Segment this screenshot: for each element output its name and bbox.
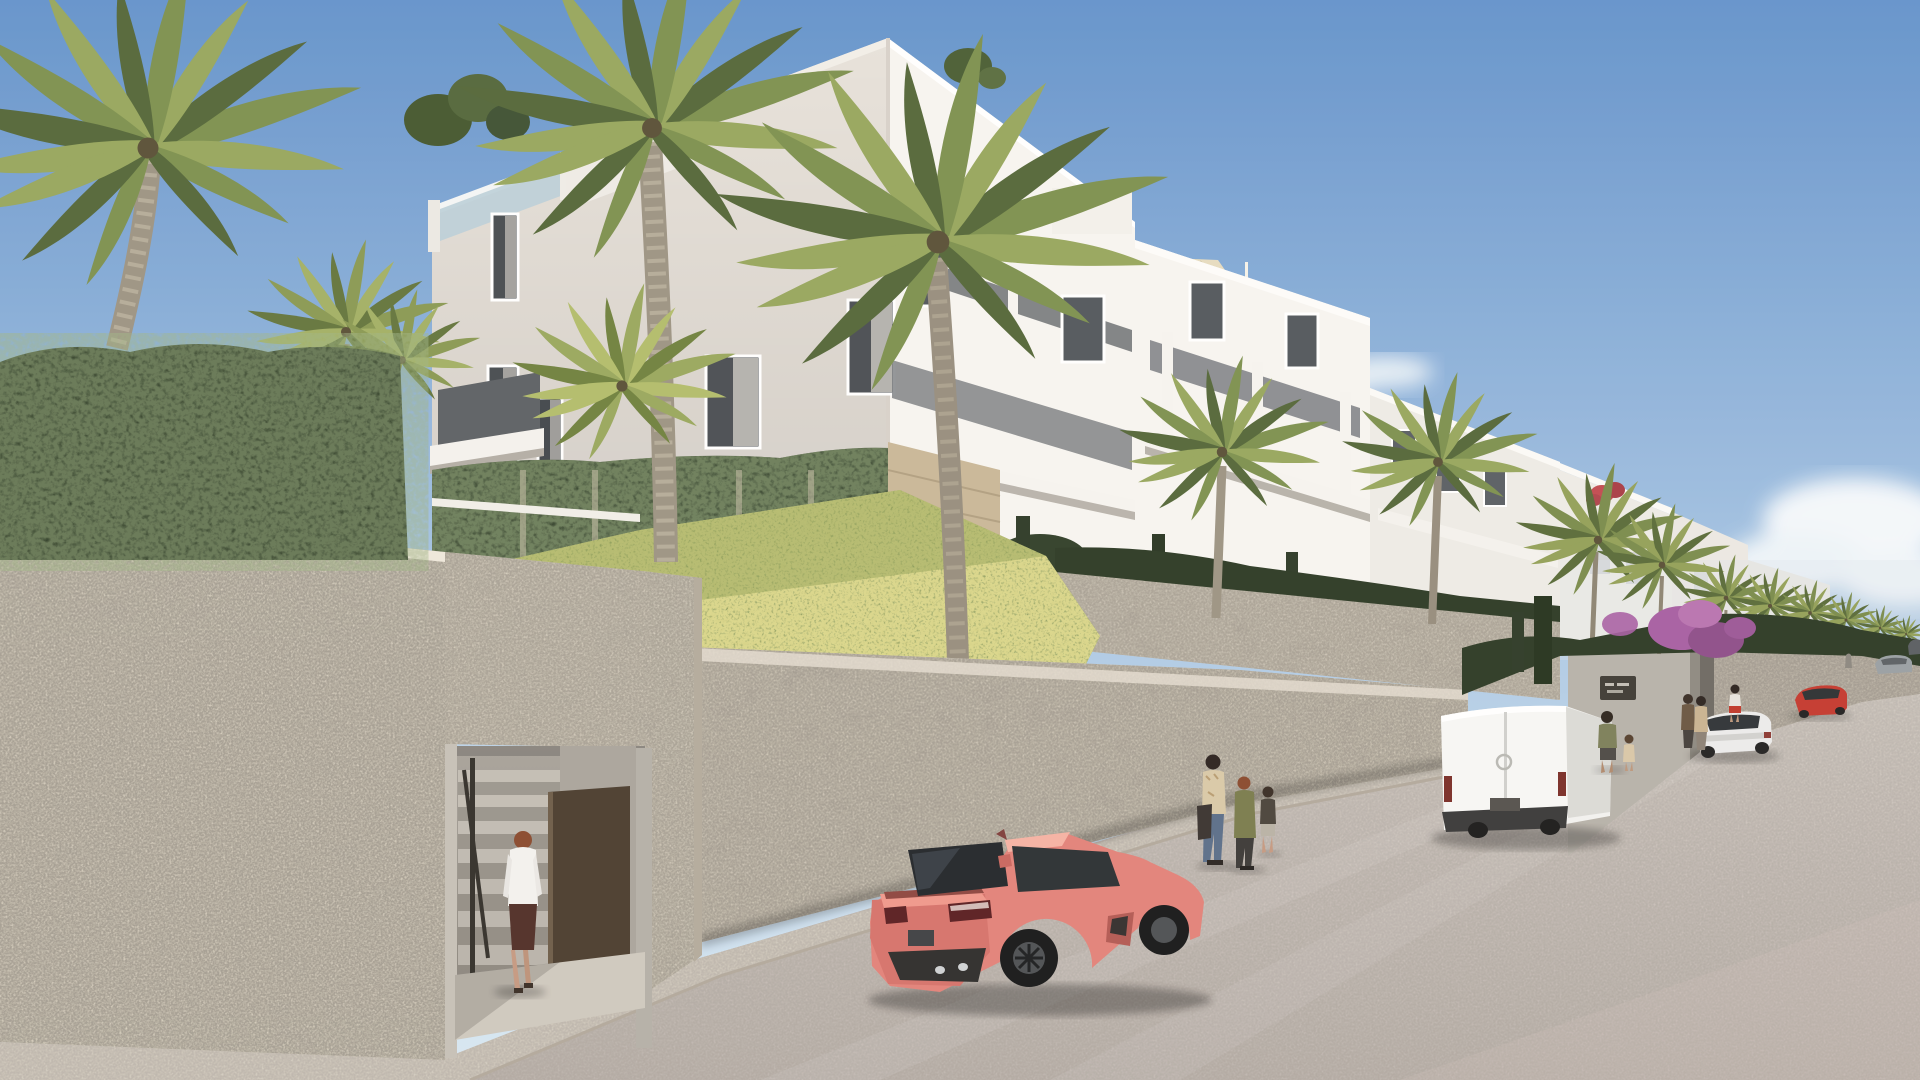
scene-canvas [0, 0, 1920, 1080]
render-image [0, 0, 1920, 1080]
warm-tint-overlay [0, 0, 1920, 1080]
